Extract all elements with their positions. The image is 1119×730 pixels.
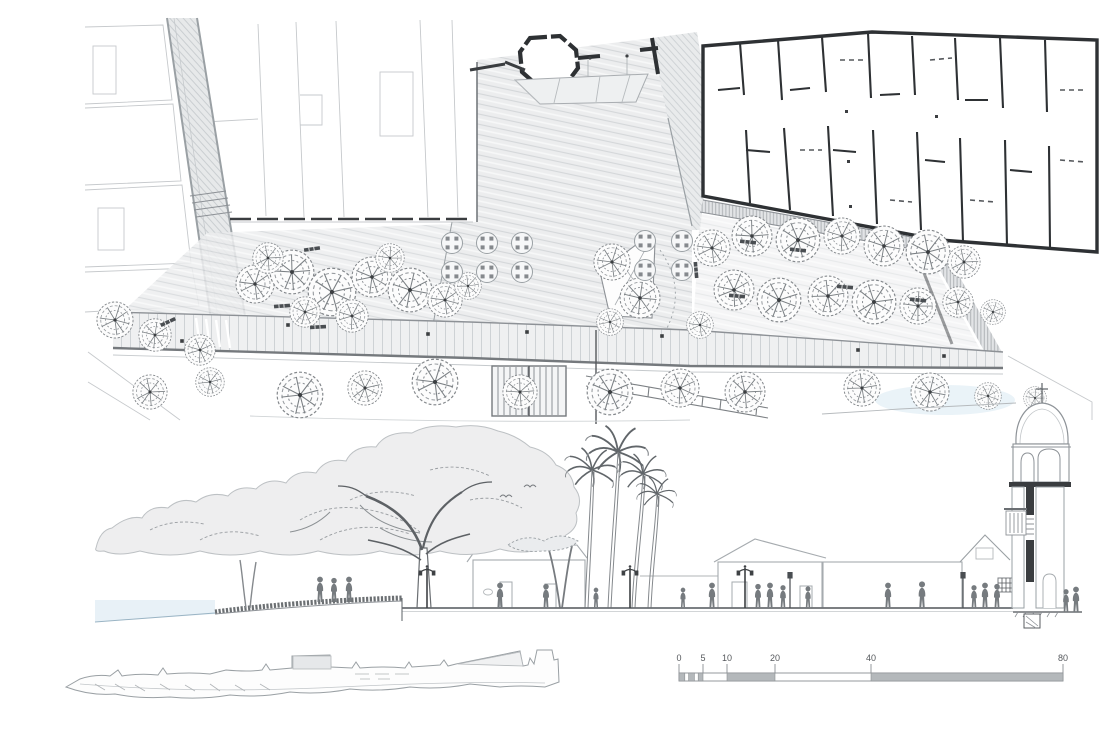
balustrade (1004, 509, 1027, 535)
person-silhouette (971, 585, 977, 608)
scale-label-10: 10 (722, 653, 732, 663)
person-silhouette (982, 583, 988, 608)
scale-label-5: 5 (700, 653, 705, 663)
person-silhouette (593, 588, 598, 608)
cafe-table-icon (672, 231, 693, 252)
water-band (95, 600, 215, 622)
slope-hedge (215, 598, 402, 612)
building-facade-west (230, 219, 473, 222)
lamp-post-icon (856, 348, 860, 352)
scale-ticks (679, 664, 1063, 673)
graphic-scale-bar: 0 5 10 20 40 80 (676, 653, 1068, 681)
cafe-table-icon (635, 231, 656, 252)
scale-filled-segments (679, 673, 1063, 681)
person-silhouette (1063, 589, 1069, 612)
palm-trunk (632, 474, 645, 608)
parcel-lines-centre (205, 20, 458, 217)
cafe-table-icon (442, 233, 463, 254)
plan-tree-icon (575, 357, 644, 426)
lamp-post-icon (180, 339, 184, 343)
plan-tree-icon (836, 362, 888, 414)
cafe-table-icon (477, 233, 498, 254)
cafe-table-icon (512, 233, 533, 254)
person-silhouette (1073, 587, 1079, 612)
tree-canopy-left (96, 426, 580, 555)
lamp-post-icon (426, 332, 430, 336)
scale-label-20: 20 (770, 653, 780, 663)
cafe-table-icon (442, 262, 463, 283)
scale-label-80: 80 (1058, 653, 1068, 663)
palm-trunk (585, 470, 594, 608)
lamp-post-icon (942, 354, 946, 358)
person-silhouette (994, 584, 1000, 608)
lamp-post-icon (525, 330, 529, 334)
person-silhouette (331, 578, 337, 602)
lamp-post-icon (660, 334, 664, 338)
palm-trunk (648, 494, 659, 608)
cafe-table-icon (635, 260, 656, 281)
plan-tree-icon (340, 363, 390, 413)
cafe-table-icon (672, 260, 693, 281)
person-silhouette (709, 583, 715, 608)
cafe-table-icon (477, 262, 498, 283)
church-tower-section (1004, 383, 1071, 608)
scale-label-0: 0 (676, 653, 681, 663)
architectural-sheet: 0 5 10 20 40 80 (0, 0, 1119, 730)
scale-label-40: 40 (866, 653, 876, 663)
street-elevation-section (95, 383, 1082, 628)
plan-tree-icon (190, 362, 229, 401)
scale-labels: 0 5 10 20 40 80 (676, 653, 1068, 663)
plan-tree-icon (126, 368, 173, 415)
site-plan (85, 18, 1097, 427)
cafe-table-icon (512, 262, 533, 283)
longitudinal-profile-sketch (66, 650, 559, 698)
lamp-post-icon (286, 323, 290, 327)
person-silhouette (680, 588, 685, 608)
person-silhouette (317, 577, 323, 602)
palm-trunk (608, 452, 620, 608)
